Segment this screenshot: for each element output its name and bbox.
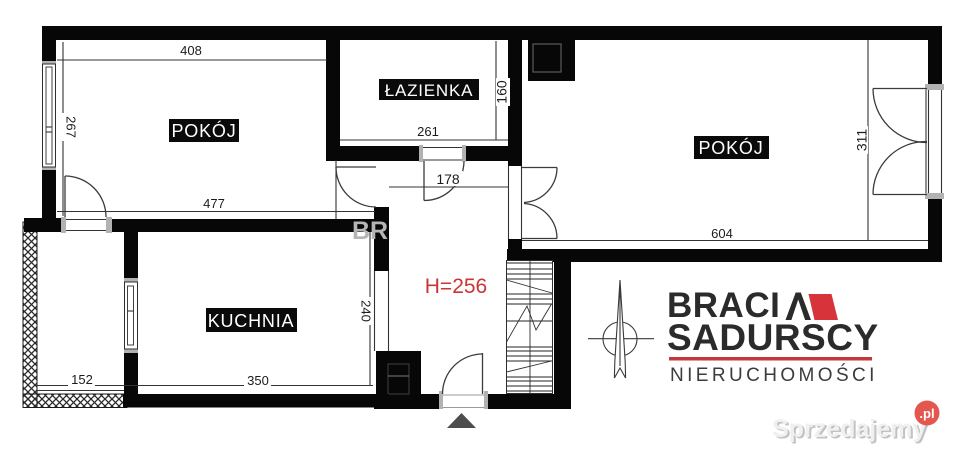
svg-text:NIERUCHOMOŚCI: NIERUCHOMOŚCI — [670, 364, 878, 386]
svg-text:H=256: H=256 — [425, 275, 487, 298]
svg-text:BR: BR — [352, 217, 388, 245]
svg-text:POKÓJ: POKÓJ — [698, 137, 763, 158]
svg-text:ŁAZIENKA: ŁAZIENKA — [385, 81, 474, 100]
svg-text:152: 152 — [71, 372, 93, 387]
svg-text:KUCHNIA: KUCHNIA — [208, 311, 295, 331]
svg-text:Sprzedajemy: Sprzedajemy — [772, 415, 926, 443]
svg-text:350: 350 — [247, 373, 269, 388]
svg-text:POKÓJ: POKÓJ — [171, 120, 236, 141]
svg-text:178: 178 — [436, 171, 460, 187]
svg-text:160: 160 — [494, 80, 510, 104]
svg-text:240: 240 — [359, 300, 374, 322]
svg-text:604: 604 — [711, 226, 733, 241]
svg-text:408: 408 — [180, 43, 202, 58]
svg-text:477: 477 — [203, 196, 225, 211]
svg-text:.pl: .pl — [919, 406, 934, 421]
svg-text:267: 267 — [64, 116, 79, 138]
svg-text:SADURSCY: SADURSCY — [667, 317, 879, 358]
svg-text:311: 311 — [854, 129, 870, 152]
svg-text:261: 261 — [417, 124, 439, 139]
